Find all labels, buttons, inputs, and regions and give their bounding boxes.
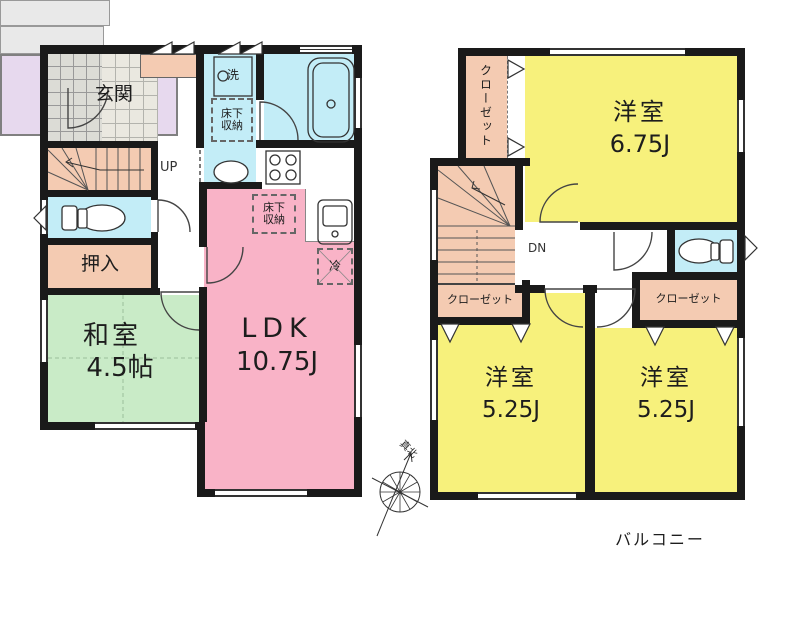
bedroom-675-name: 洋室 xyxy=(590,99,690,126)
closet-under-stairs-label: クローゼット xyxy=(438,294,522,306)
bedroom525l-door-arc xyxy=(545,289,583,327)
door-arcs xyxy=(68,88,652,330)
washer-label: 洗 xyxy=(227,69,239,82)
japanese-room-name: 和室 xyxy=(70,322,154,351)
bedroom675-door-arc xyxy=(540,184,578,222)
underfloor-storage-washroom-box: 床下収納 xyxy=(211,98,253,142)
closet-fold-mark xyxy=(508,60,524,78)
balcony-label: バルコニー xyxy=(590,531,730,549)
ldk-size: 10.75J xyxy=(217,348,337,377)
bedroom-525-right-name: 洋室 xyxy=(616,366,716,392)
closet-top-left-label: クローゼット xyxy=(478,64,491,148)
vent-mark xyxy=(34,206,46,230)
ldk-name: LDK xyxy=(227,314,327,344)
bedroom-525-left-name: 洋室 xyxy=(461,366,561,392)
north-arrow-line xyxy=(377,453,411,536)
floor-plan-canvas: 床下収納 床下収納 冷 玄関 xyxy=(0,0,800,632)
bedroom-675-size: 6.75J xyxy=(580,131,700,158)
bedroom-525-right-size: 5.25J xyxy=(606,398,726,424)
toilet1-door-arc xyxy=(158,200,190,232)
stairs-2f-steps xyxy=(438,166,515,283)
toilet2-icon xyxy=(679,239,733,263)
roof-vent-mark xyxy=(240,42,262,54)
washbasin-icon xyxy=(214,161,248,183)
closet-fold-mark xyxy=(512,324,530,342)
bedroom525r-door-arc xyxy=(597,289,635,327)
stairs-down-label: DN xyxy=(528,242,546,255)
ldk-door-arc xyxy=(207,247,243,283)
compass-icon xyxy=(372,453,428,536)
underfloor-storage-washroom-label: 床下収納 xyxy=(219,108,245,133)
closet-right-label: クローゼット xyxy=(640,293,737,305)
refrigerator-box: 冷 xyxy=(317,248,353,285)
bedroom-525-left-size: 5.25J xyxy=(451,398,571,424)
entrance-label: 玄関 xyxy=(86,84,142,105)
roof-vent-mark xyxy=(172,42,194,54)
toilet-icon xyxy=(62,205,125,231)
toilet2-door-arc xyxy=(614,232,652,270)
bath-door-arc xyxy=(260,102,298,140)
kitchen-sink-icon xyxy=(318,200,352,244)
closet-fold-mark xyxy=(646,327,664,345)
japanese-room-size: 4.5帖 xyxy=(66,354,174,383)
stairs-1f-steps xyxy=(48,148,144,190)
vent-mark xyxy=(745,236,757,260)
bathtub-icon xyxy=(308,58,354,142)
stairs-up-label: UP xyxy=(160,161,177,176)
stove-icon xyxy=(266,151,300,184)
closet-fold-mark xyxy=(441,324,459,342)
underfloor-storage-ldk-label: 床下収納 xyxy=(261,202,287,227)
roof-vent-mark xyxy=(150,42,172,54)
closet-fold-mark xyxy=(508,138,524,156)
oshiire-label: 押入 xyxy=(70,254,130,275)
closet-fold-mark xyxy=(716,327,734,345)
washitsu-door-arc xyxy=(161,292,199,330)
refrigerator-label: 冷 xyxy=(329,260,341,273)
roof-vent-mark xyxy=(218,42,240,54)
underfloor-storage-ldk-box: 床下収納 xyxy=(252,194,296,234)
